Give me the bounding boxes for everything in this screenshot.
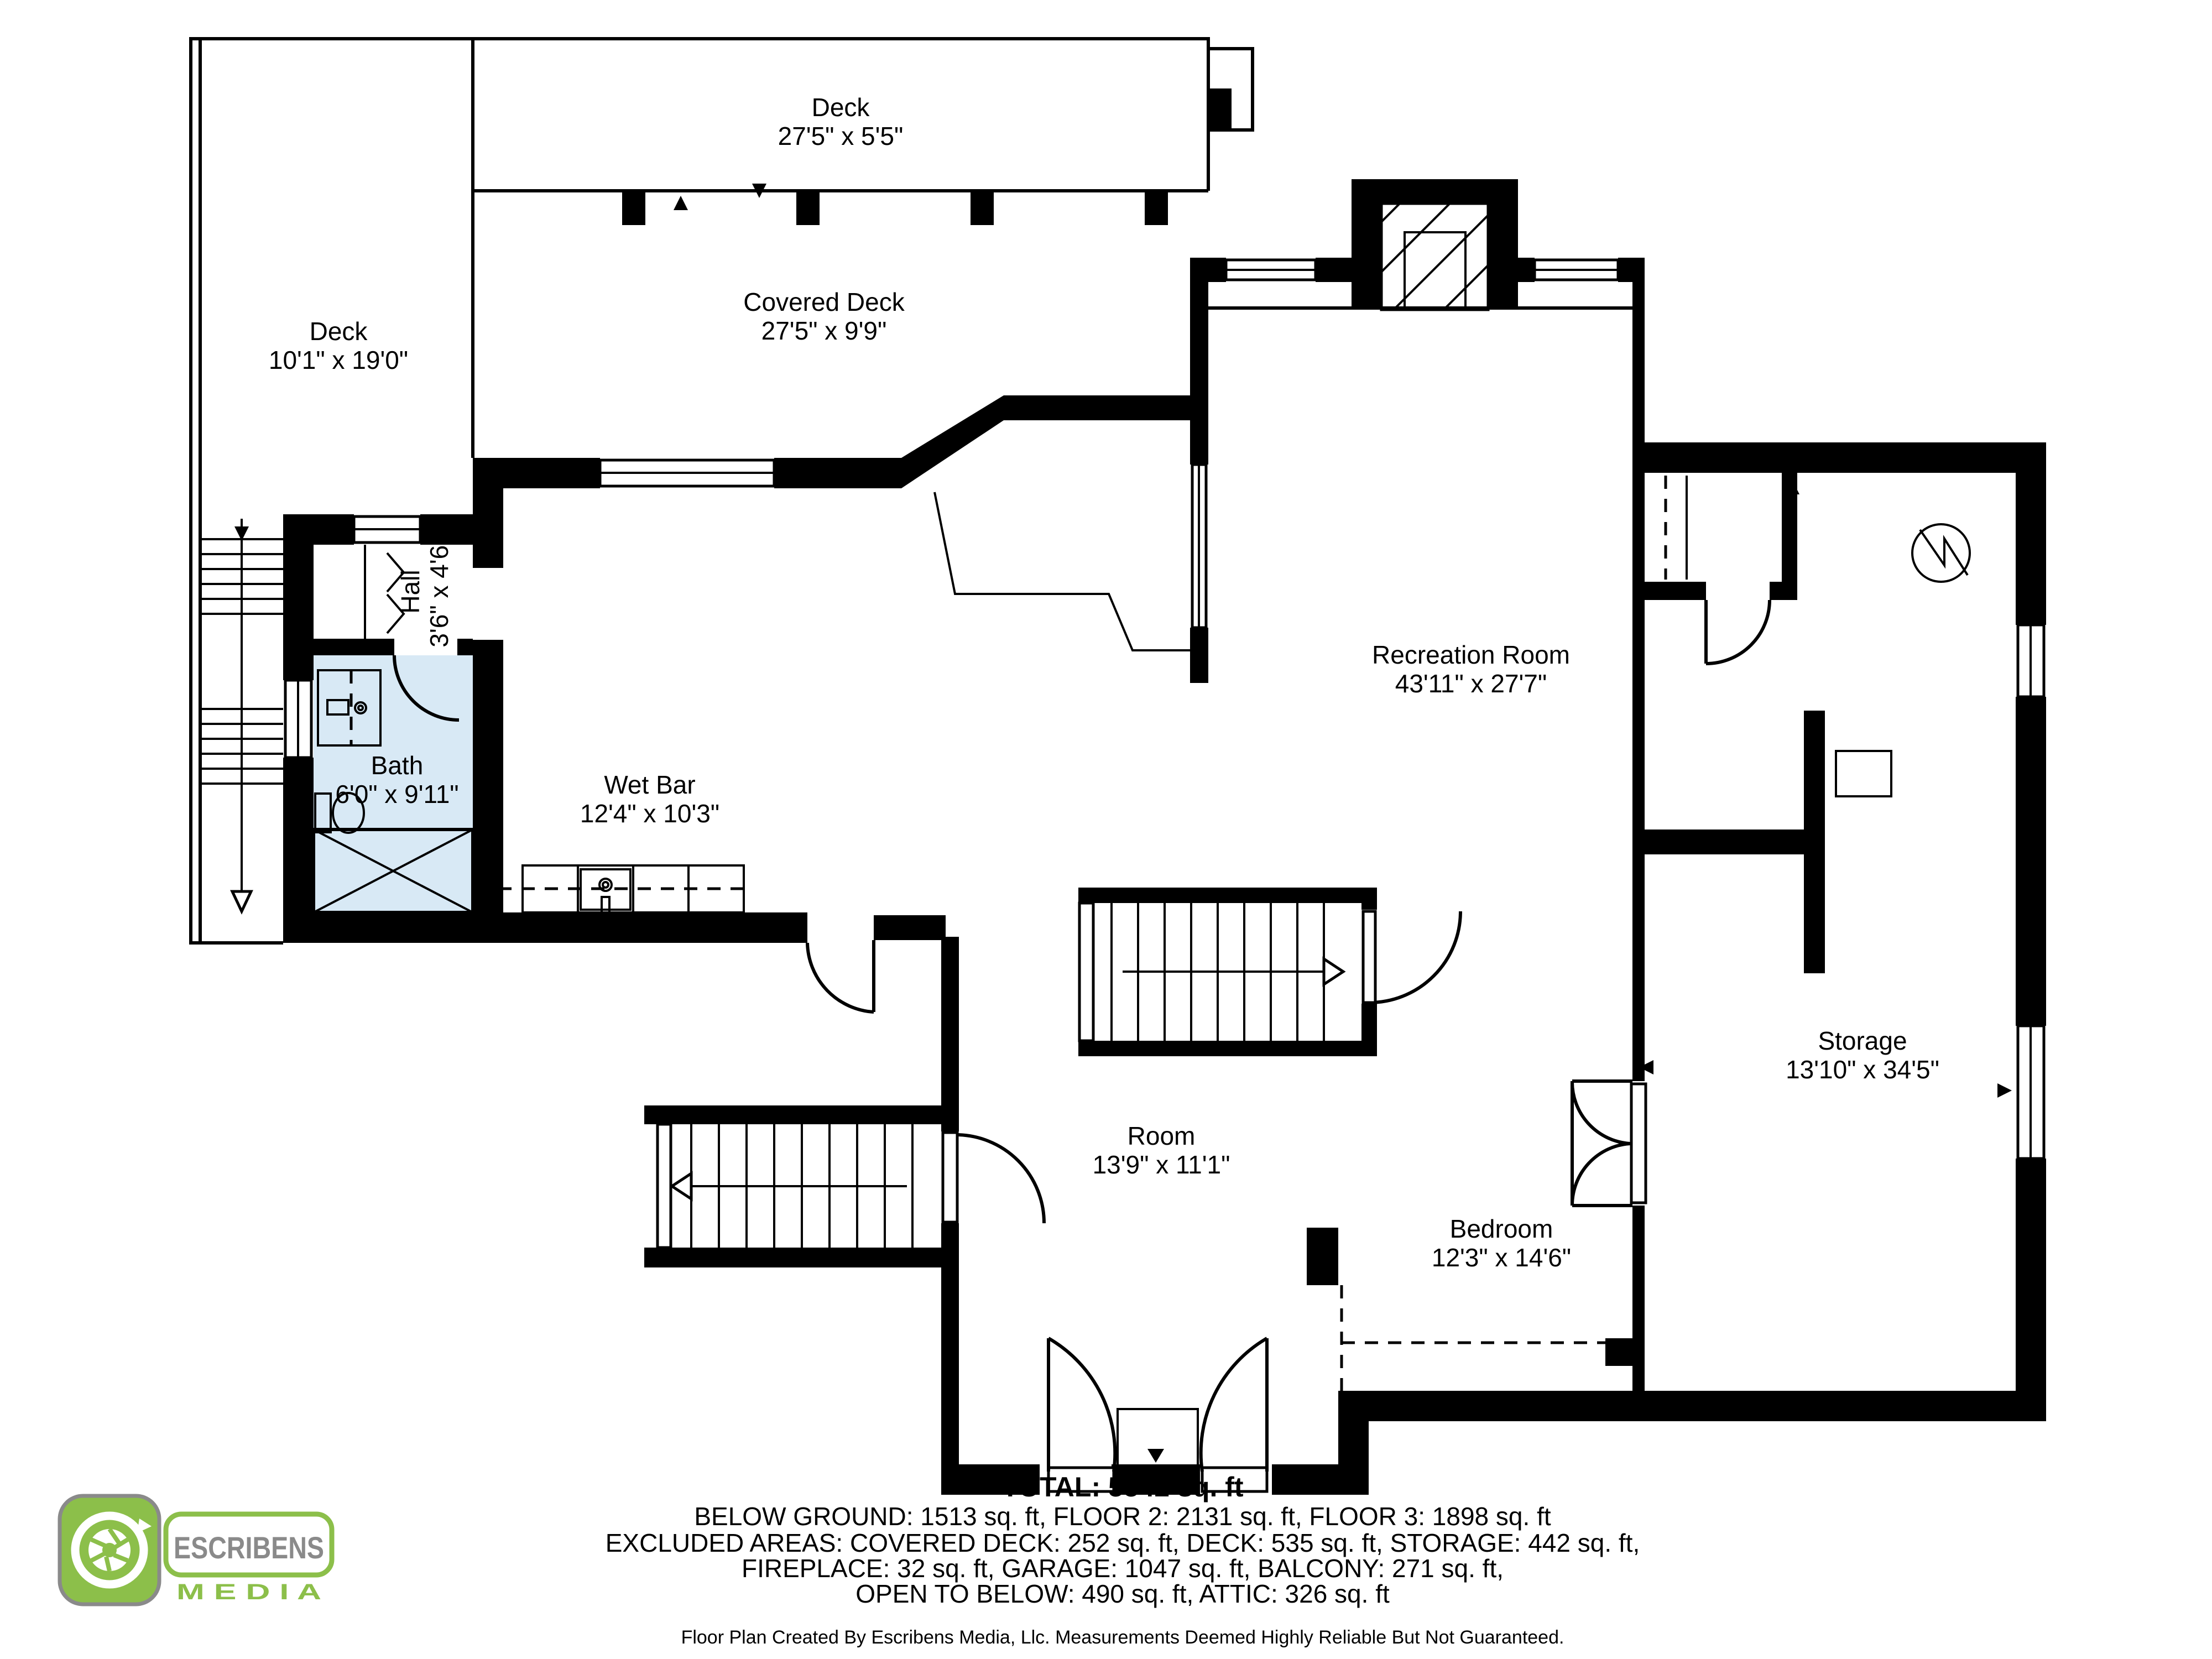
label-bath-name: Bath — [371, 751, 424, 780]
footer-line-1: BELOW GROUND: 1513 sq. ft, FLOOR 2: 2131… — [694, 1502, 1551, 1531]
upper-stairs — [1079, 903, 1343, 1041]
label-recreation-dims: 43'11" x 27'7" — [1395, 669, 1547, 698]
label-deck-left-name: Deck — [310, 317, 368, 346]
footer-line-4: OPEN TO BELOW: 490 sq. ft, ATTIC: 326 sq… — [855, 1579, 1390, 1608]
lower-stairs — [658, 1124, 912, 1248]
footer: TOTAL: 5542 sq. ft BELOW GROUND: 1513 sq… — [606, 1472, 1640, 1648]
window-covered-deck — [600, 460, 774, 486]
label-room-name: Room — [1128, 1121, 1196, 1150]
floor-plan-page: Deck 27'5" x 5'5" Deck 10'1" x 19'0" Cov… — [0, 0, 2212, 1659]
label-bedroom-dims: 12'3" x 14'6" — [1432, 1243, 1571, 1272]
label-deck-top-name: Deck — [812, 93, 870, 122]
wet-bar-exterior-door — [807, 940, 874, 1012]
ceiling-break-lines — [935, 492, 1190, 650]
escribens-logo: ESCRIBENS M E D I A — [60, 1496, 332, 1604]
label-covered-deck-dims: 27'5" x 9'9" — [761, 316, 887, 345]
label-wet-bar-dims: 12'4" x 10'3" — [580, 799, 719, 828]
floor-plan-drawing: Deck 27'5" x 5'5" Deck 10'1" x 19'0" Cov… — [0, 0, 2212, 1659]
bedroom-double-doors — [1572, 1081, 1646, 1206]
window-bath-west — [285, 680, 311, 758]
window-rec-west-wall — [1192, 465, 1206, 628]
window-storage-east-lower — [2018, 1026, 2044, 1159]
equipment-box — [1836, 751, 1891, 796]
logo-media-text: M E D I A — [176, 1580, 321, 1604]
closet-door-right-wing — [1706, 600, 1770, 664]
label-hall-group: Hall 3'6" x 4'6" — [396, 536, 453, 647]
upper-stair-door — [1363, 911, 1460, 1003]
footer-line-2: EXCLUDED AREAS: COVERED DECK: 252 sq. ft… — [606, 1528, 1640, 1557]
label-hall-name: Hall — [396, 570, 425, 613]
label-deck-top-dims: 27'5" x 5'5" — [778, 122, 904, 150]
window-hall-north — [354, 517, 420, 542]
bedroom-open-boundary — [1342, 1285, 1605, 1464]
label-deck-left-dims: 10'1" x 19'0" — [269, 346, 408, 374]
label-wet-bar-name: Wet Bar — [604, 770, 695, 799]
label-bath-dims: 6'0" x 9'11" — [335, 780, 458, 808]
label-recreation-name: Recreation Room — [1372, 640, 1570, 669]
aperture-center-icon — [102, 1543, 117, 1557]
lower-stair-door — [943, 1133, 1044, 1223]
fireplace — [1197, 204, 1632, 310]
deck-posts — [622, 88, 1232, 225]
label-room-dims: 13'9" x 11'1" — [1093, 1150, 1230, 1179]
logo-brand-text: ESCRIBENS — [174, 1530, 324, 1565]
footer-disclaimer: Floor Plan Created By Escribens Media, L… — [681, 1627, 1564, 1648]
bar-sink — [581, 869, 630, 916]
window-rec-right-of-fireplace — [1535, 260, 1618, 280]
window-rec-left-of-fireplace — [1226, 260, 1316, 280]
wet-bar-counter — [501, 839, 744, 916]
electrical-symbol — [1912, 524, 1970, 582]
footer-total: TOTAL: 5542 sq. ft — [1001, 1472, 1243, 1503]
walls — [283, 179, 2046, 1495]
label-covered-deck-name: Covered Deck — [743, 288, 905, 316]
exterior-stairs — [200, 519, 283, 911]
label-hall-dims: 3'6" x 4'6" — [425, 536, 453, 647]
window-storage-east-upper — [2018, 625, 2044, 697]
label-bedroom-name: Bedroom — [1450, 1214, 1553, 1243]
label-storage-name: Storage — [1818, 1026, 1907, 1055]
footer-line-3: FIREPLACE: 32 sq. ft, GARAGE: 1047 sq. f… — [742, 1554, 1504, 1583]
room-labels: Deck 27'5" x 5'5" Deck 10'1" x 19'0" Cov… — [269, 93, 1939, 1272]
label-storage-dims: 13'10" x 34'5" — [1786, 1055, 1939, 1084]
